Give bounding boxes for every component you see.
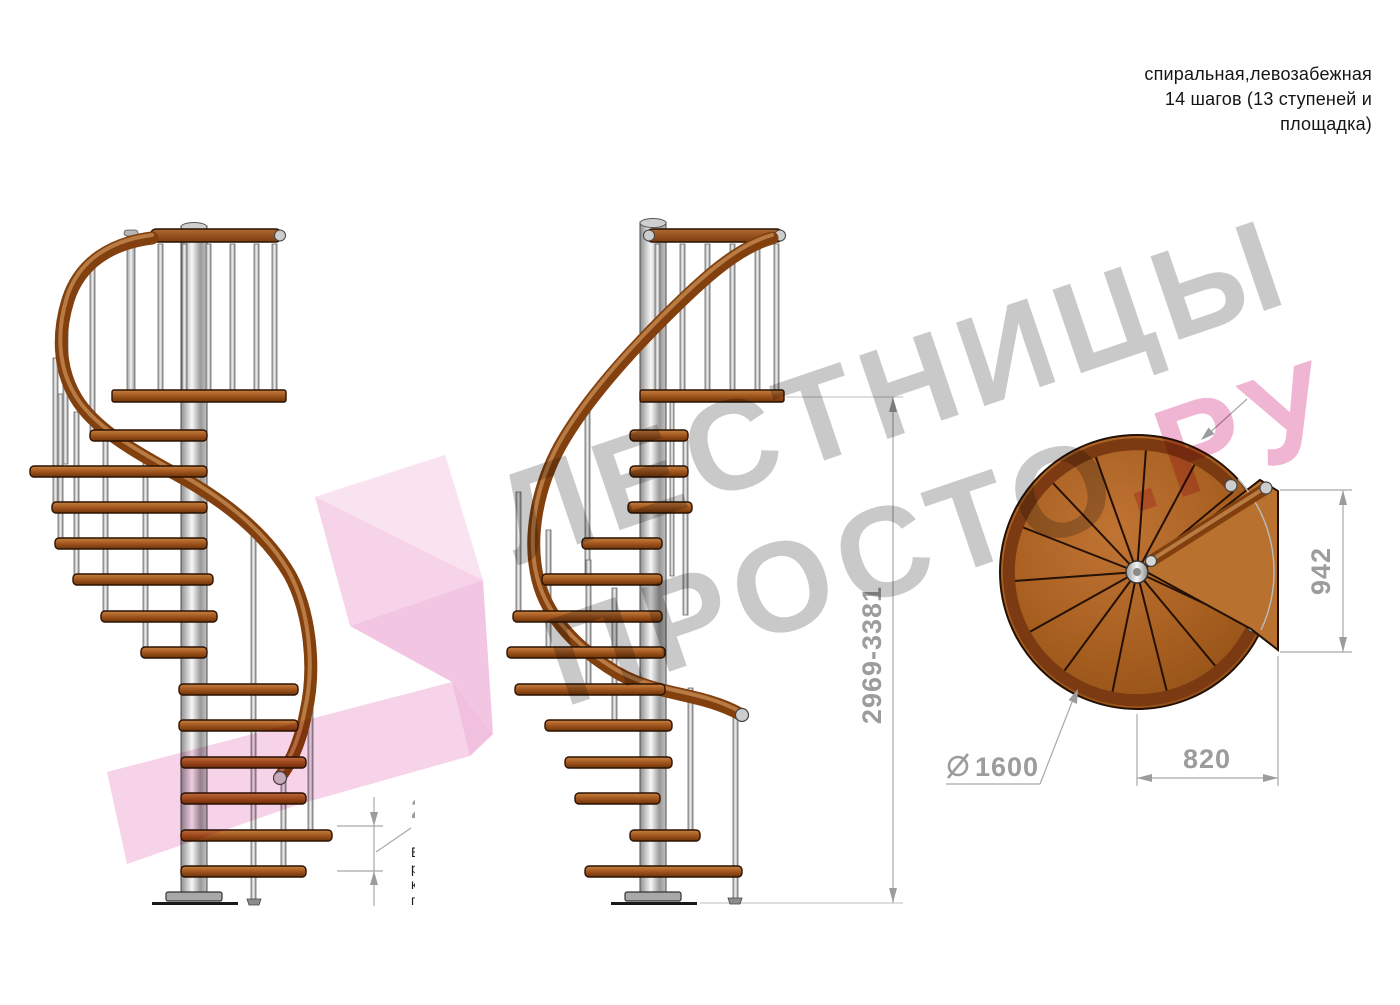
platform-length-dimension: 942 xyxy=(1280,490,1352,652)
note-line: Высота шага xyxy=(411,845,415,860)
total-height-dimension: 2969-3381 xyxy=(700,397,903,903)
note-line: композитными xyxy=(411,877,415,892)
diameter-value: 1600 xyxy=(975,752,1039,782)
drawing-description: спиральная,левозабежная 14 шагов (13 сту… xyxy=(952,62,1372,137)
description-line: площадка) xyxy=(952,112,1372,137)
step-height-value: 212-242 xyxy=(411,794,415,824)
staircase-side-view-center: 2969-3381 xyxy=(490,210,910,920)
note-line: регулируется xyxy=(411,861,415,876)
description-line: 14 шагов (13 ступеней и xyxy=(952,87,1372,112)
total-height-value: 2969-3381 xyxy=(857,586,887,724)
staircase-top-view: 942 820 1600 xyxy=(920,350,1400,810)
platform-offset-value: 820 xyxy=(1183,744,1231,774)
logo-shape xyxy=(452,682,493,756)
note-line: проставками xyxy=(411,893,415,908)
diameter-icon xyxy=(948,754,968,778)
platform-length-value: 942 xyxy=(1306,547,1336,595)
staircase-side-view-left: 212-242 Высота шага регулируется компози… xyxy=(15,210,415,920)
description-line: спиральная,левозабежная xyxy=(952,62,1372,87)
step-height-dimension: 212-242 Высота шага регулируется компози… xyxy=(337,794,415,908)
column-hub xyxy=(1126,561,1148,583)
